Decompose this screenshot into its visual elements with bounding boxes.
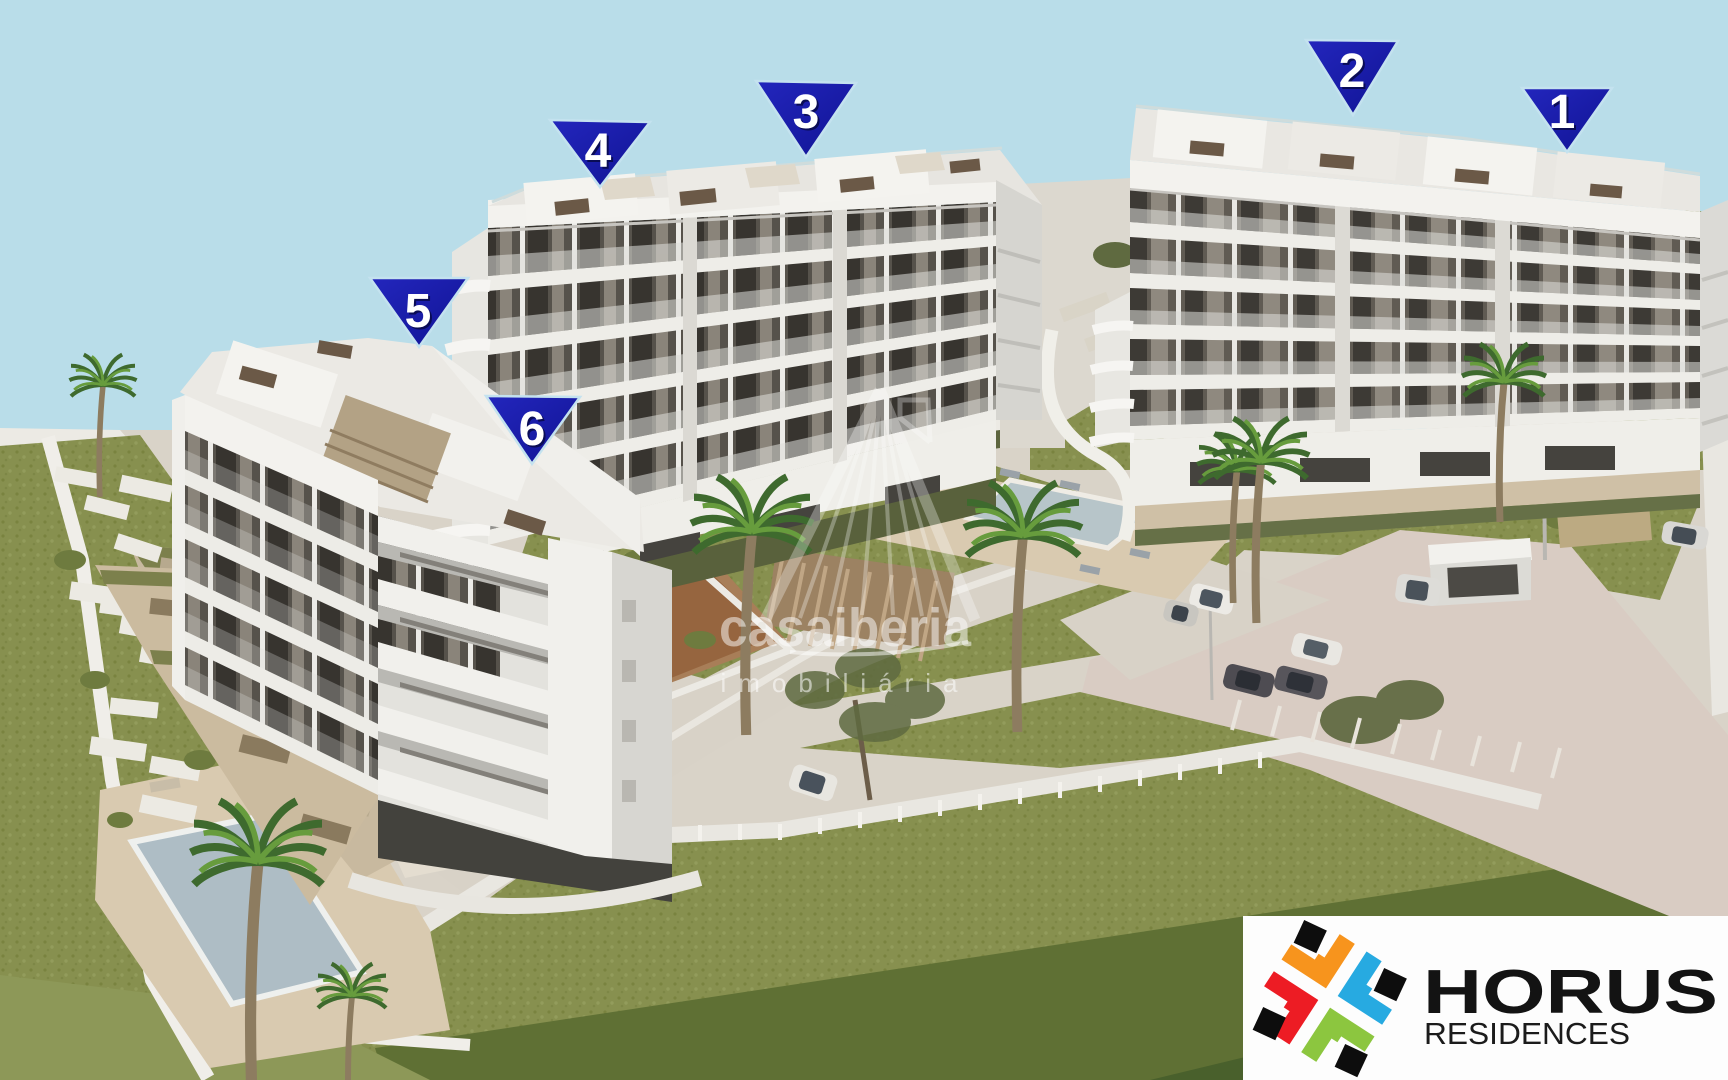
svg-text:1: 1 [1549,86,1576,139]
svg-text:2: 2 [1339,45,1366,98]
svg-text:4: 4 [585,125,612,178]
svg-text:RESIDENCES: RESIDENCES [1424,1016,1630,1051]
svg-text:3: 3 [793,86,820,139]
svg-text:6: 6 [519,403,546,456]
svg-text:imobiliária: imobiliária [720,668,969,698]
svg-text:5: 5 [405,285,432,338]
